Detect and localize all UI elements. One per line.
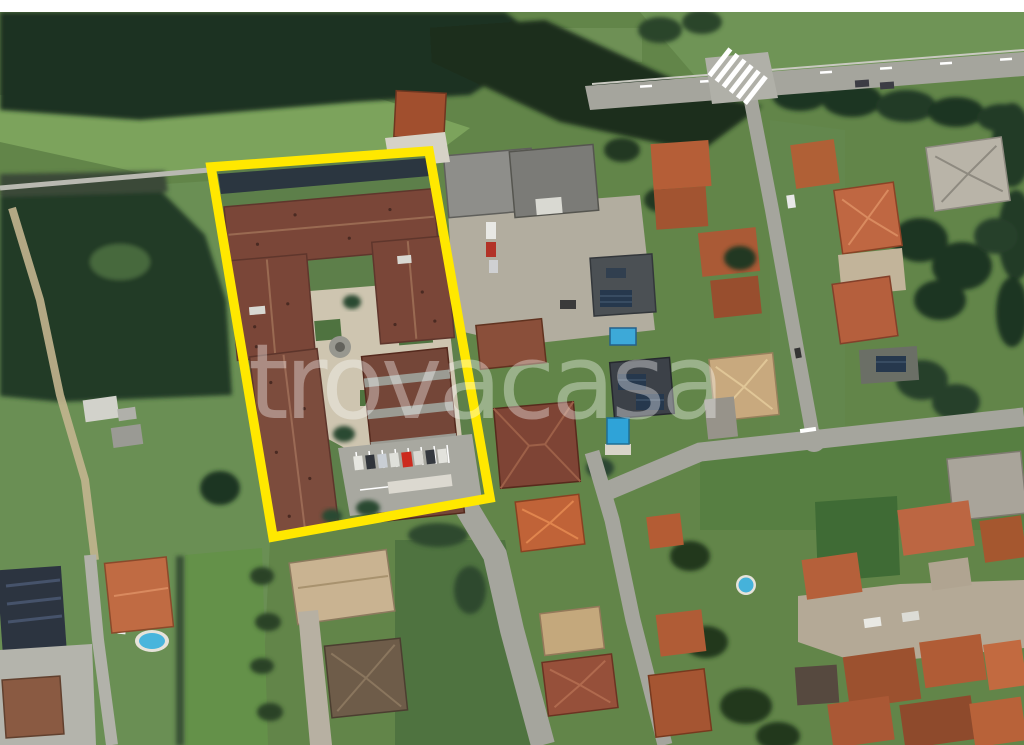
top-white-bar: [0, 0, 1024, 12]
satellite-map-canvas: trovacasa: [0, 0, 1024, 745]
satellite-map-image: trovacasa: [0, 0, 1024, 745]
watermark-text: trovacasa: [248, 321, 721, 443]
